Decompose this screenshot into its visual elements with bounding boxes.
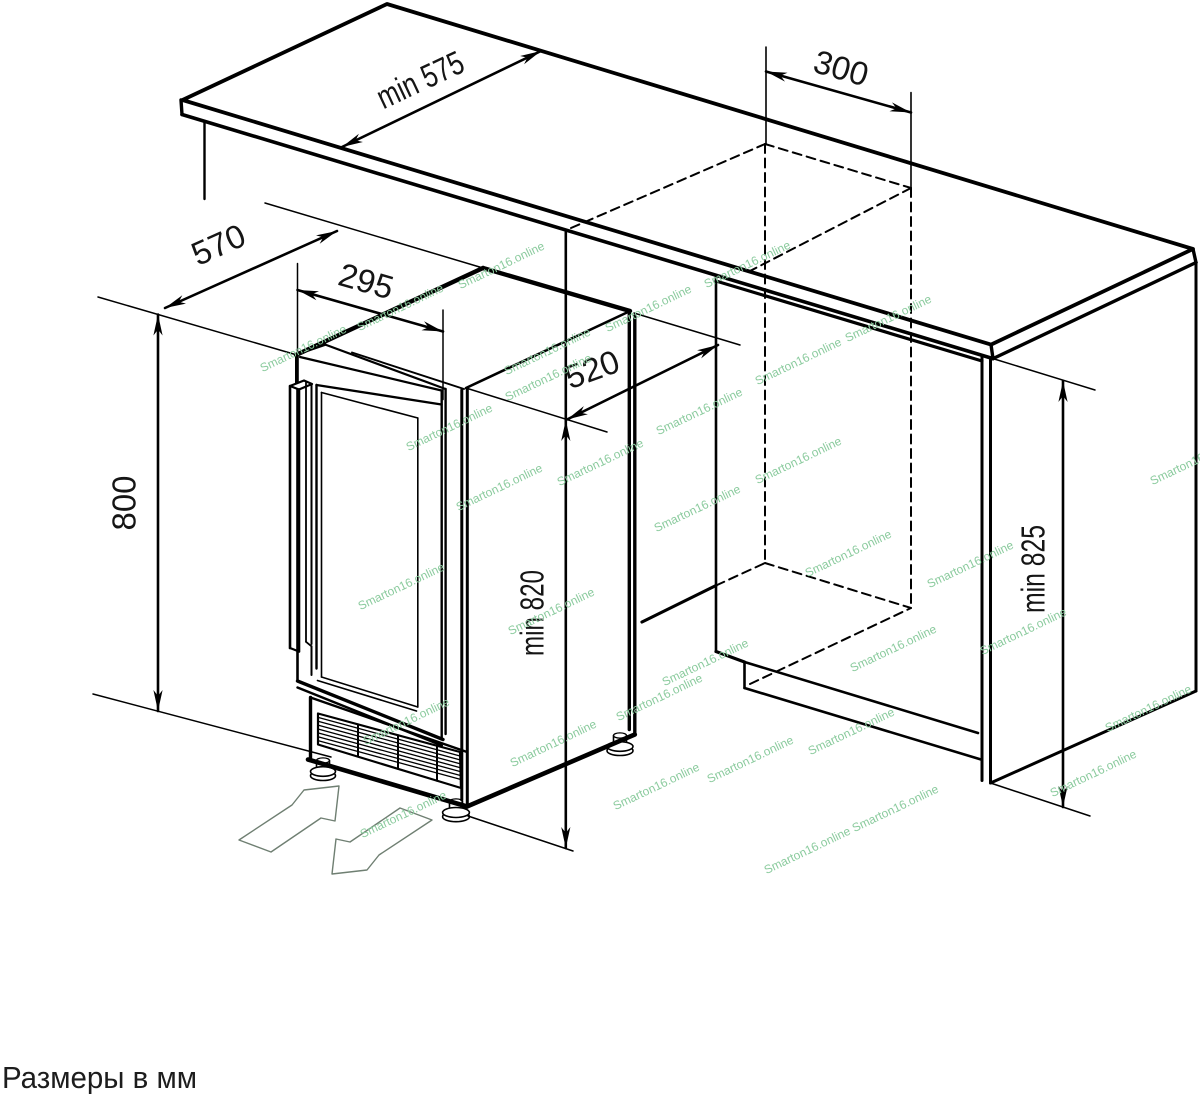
svg-text:min 825: min 825 (1015, 525, 1052, 613)
svg-text:Размеры в мм: Размеры в мм (2, 1060, 197, 1094)
svg-text:800: 800 (106, 475, 143, 530)
